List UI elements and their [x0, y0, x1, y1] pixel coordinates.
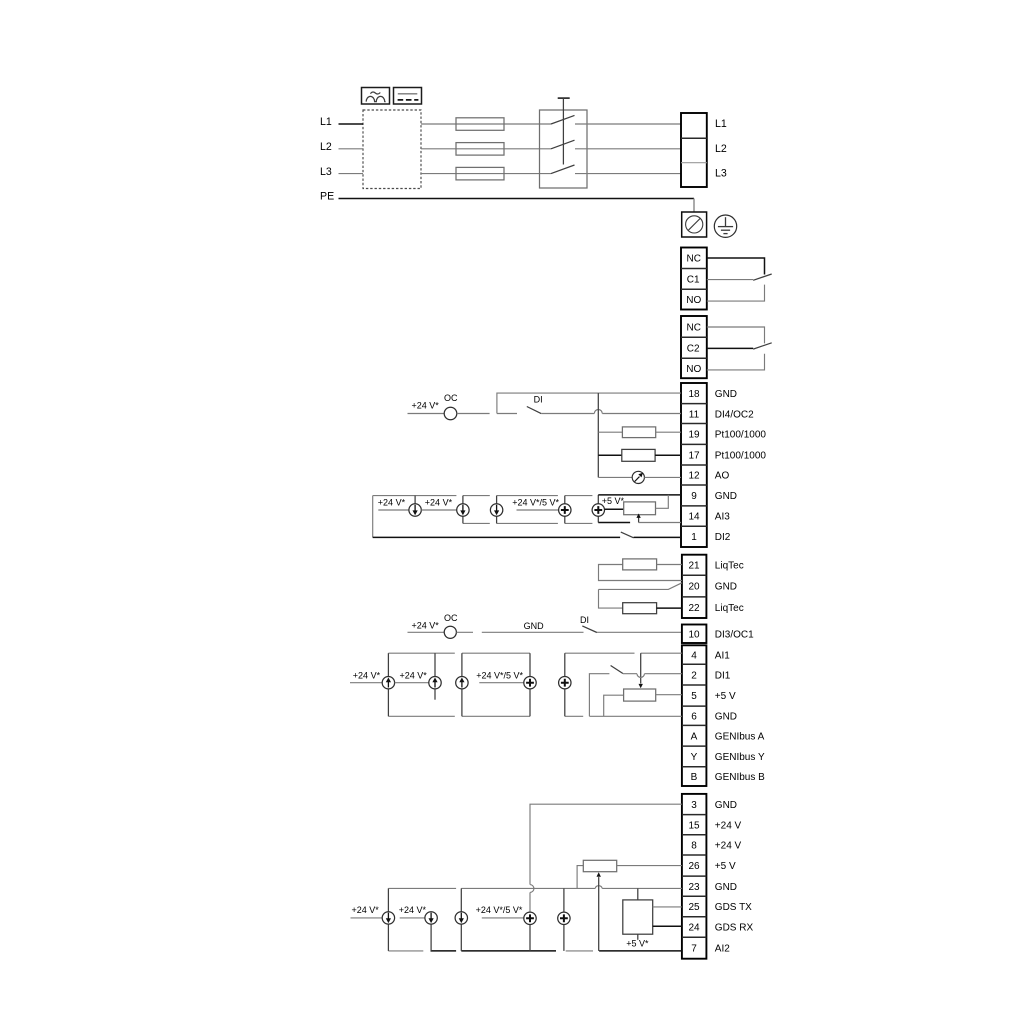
svg-text:GND: GND — [715, 491, 737, 502]
svg-text:DI: DI — [580, 615, 589, 625]
svg-text:GND: GND — [715, 800, 737, 811]
svg-text:LiqTec: LiqTec — [715, 603, 744, 614]
svg-text:+24 V*: +24 V* — [352, 905, 380, 915]
svg-text:L1: L1 — [320, 116, 332, 128]
svg-text:17: 17 — [688, 450, 700, 461]
svg-text:Pt100/1000: Pt100/1000 — [715, 450, 767, 461]
svg-text:Y: Y — [691, 752, 698, 763]
svg-text:DI4/OC2: DI4/OC2 — [715, 409, 754, 420]
svg-text:GENIbus Y: GENIbus Y — [715, 752, 765, 763]
svg-text:22: 22 — [688, 603, 700, 614]
svg-text:8: 8 — [691, 841, 697, 852]
svg-text:+5 V: +5 V — [715, 861, 736, 872]
svg-text:L2: L2 — [715, 143, 727, 155]
svg-text:25: 25 — [688, 902, 700, 913]
svg-text:+24 V*: +24 V* — [412, 621, 440, 631]
svg-text:L3: L3 — [715, 168, 727, 180]
svg-text:OC: OC — [444, 393, 458, 403]
svg-text:DI2: DI2 — [715, 532, 731, 543]
svg-text:+24 V*: +24 V* — [399, 905, 427, 915]
svg-text:GND: GND — [715, 882, 737, 893]
svg-text:AI3: AI3 — [715, 512, 730, 523]
svg-text:12: 12 — [688, 471, 700, 482]
svg-text:9: 9 — [691, 491, 697, 502]
svg-text:L1: L1 — [715, 118, 727, 130]
svg-text:NC: NC — [687, 254, 701, 265]
svg-text:GND: GND — [715, 389, 737, 400]
svg-text:GDS RX: GDS RX — [715, 923, 754, 934]
svg-text:+24 V: +24 V — [715, 820, 742, 831]
svg-text:+5 V*: +5 V* — [626, 939, 649, 949]
svg-text:+24 V*/5 V*: +24 V*/5 V* — [476, 670, 523, 680]
svg-text:+24 V*: +24 V* — [425, 498, 453, 508]
svg-text:B: B — [691, 772, 698, 783]
svg-text:23: 23 — [688, 882, 700, 893]
svg-text:+5 V*: +5 V* — [602, 496, 625, 506]
svg-text:10: 10 — [688, 629, 700, 640]
svg-text:AI1: AI1 — [715, 650, 730, 661]
svg-text:+5 V: +5 V — [715, 691, 736, 702]
svg-text:AO: AO — [715, 471, 730, 482]
svg-text:GND: GND — [715, 711, 737, 722]
svg-text:6: 6 — [691, 711, 697, 722]
svg-text:C2: C2 — [687, 344, 700, 355]
svg-text:AI2: AI2 — [715, 944, 730, 955]
svg-text:+24 V: +24 V — [715, 841, 742, 852]
svg-text:L2: L2 — [320, 141, 332, 153]
svg-text:21: 21 — [688, 561, 700, 572]
svg-text:GDS TX: GDS TX — [715, 902, 752, 913]
svg-text:DI3/OC1: DI3/OC1 — [715, 629, 754, 640]
svg-text:L3: L3 — [320, 166, 332, 178]
svg-text:PE: PE — [320, 191, 334, 203]
svg-text:4: 4 — [691, 650, 697, 661]
svg-text:+24 V*: +24 V* — [378, 498, 406, 508]
svg-text:NO: NO — [686, 364, 701, 375]
svg-text:NC: NC — [687, 322, 701, 333]
svg-text:2: 2 — [691, 670, 697, 681]
svg-text:11: 11 — [689, 409, 700, 420]
svg-text:GND: GND — [524, 621, 545, 631]
svg-text:C1: C1 — [687, 274, 700, 285]
svg-text:19: 19 — [688, 430, 700, 441]
svg-text:1: 1 — [691, 532, 697, 543]
svg-text:DI1: DI1 — [715, 670, 731, 681]
svg-text:24: 24 — [688, 923, 700, 934]
svg-text:3: 3 — [691, 800, 697, 811]
svg-text:A: A — [691, 731, 698, 742]
svg-text:+24 V*/5 V*: +24 V*/5 V* — [512, 498, 559, 508]
svg-text:LiqTec: LiqTec — [715, 561, 744, 572]
svg-text:Pt100/1000: Pt100/1000 — [715, 430, 767, 441]
svg-text:+24 V*: +24 V* — [400, 670, 428, 680]
svg-text:GND: GND — [715, 582, 737, 593]
svg-text:5: 5 — [691, 691, 697, 702]
svg-text:7: 7 — [691, 944, 697, 955]
svg-text:NO: NO — [686, 295, 701, 306]
svg-text:GENIbus B: GENIbus B — [715, 772, 765, 783]
svg-text:+24 V*/5 V*: +24 V*/5 V* — [476, 905, 523, 915]
svg-text:14: 14 — [688, 512, 700, 523]
svg-text:18: 18 — [688, 389, 700, 400]
svg-text:OC: OC — [444, 613, 458, 623]
svg-text:DI: DI — [534, 394, 543, 404]
svg-text:15: 15 — [688, 820, 700, 831]
svg-text:26: 26 — [688, 861, 700, 872]
svg-text:GENIbus A: GENIbus A — [715, 731, 765, 742]
svg-text:+24 V*: +24 V* — [412, 401, 440, 411]
svg-text:+24 V*: +24 V* — [353, 670, 381, 680]
svg-text:20: 20 — [688, 582, 700, 593]
